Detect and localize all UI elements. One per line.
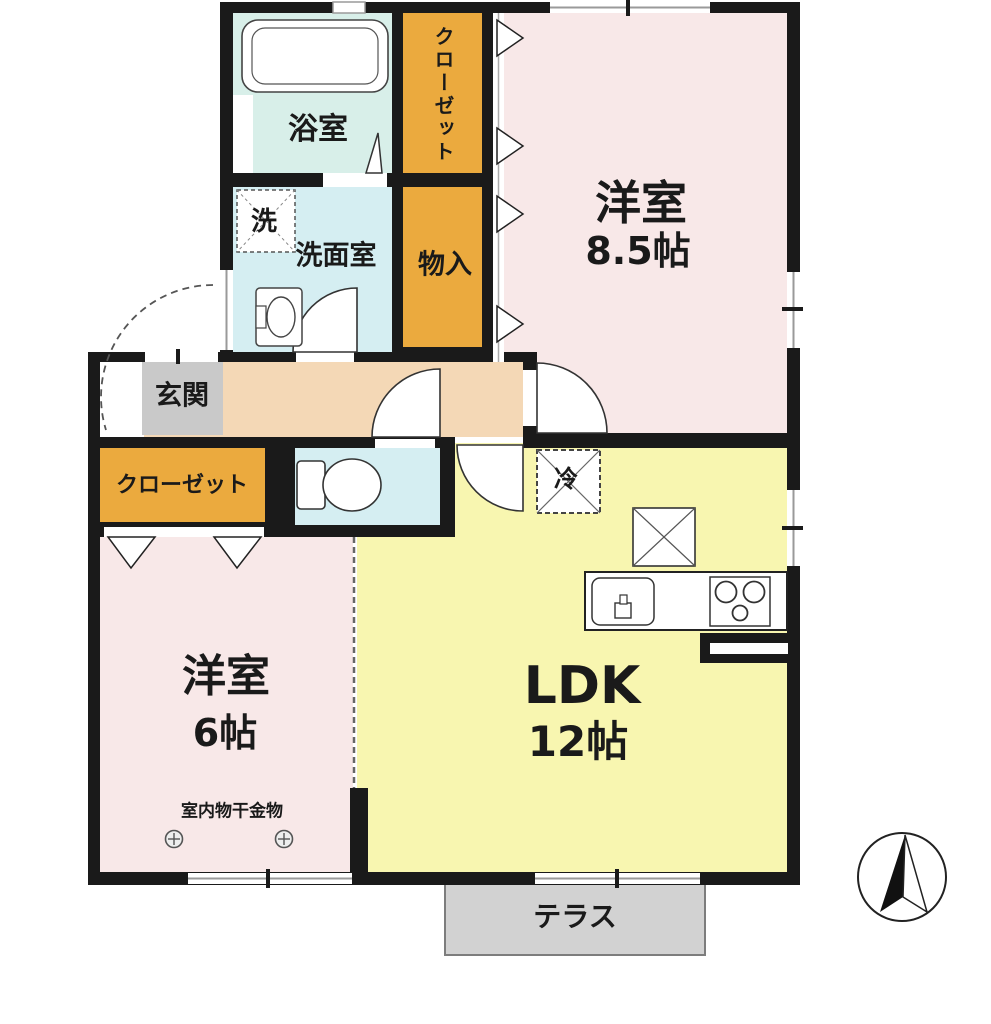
label-terrace: テラス — [533, 903, 616, 931]
label-bedroom1-name: 洋室 — [595, 180, 687, 226]
door-opening — [296, 352, 354, 362]
window-center-tick — [615, 869, 619, 888]
window-center-tick — [782, 526, 803, 530]
toilet-tank — [297, 461, 325, 509]
label-washroom: 洗面室 — [296, 243, 377, 270]
window-center-tick — [626, 0, 630, 16]
stove-burner — [733, 606, 748, 621]
door-opening — [323, 173, 387, 187]
door-opening — [145, 352, 218, 362]
stove-burner — [744, 582, 765, 603]
drying-anchor-icon — [276, 831, 293, 848]
label-bath: 浴室 — [288, 115, 348, 145]
label-washer: 洗 — [251, 209, 277, 235]
label-ldk-name: LDK — [524, 660, 641, 712]
drying-anchor-icon — [166, 831, 183, 848]
door-center-tick — [176, 349, 180, 364]
label-bedroom1-size: 8.5帖 — [585, 232, 690, 270]
washbasin-faucet — [256, 306, 266, 328]
door-opening — [523, 370, 537, 426]
wall — [270, 525, 455, 537]
door-opening — [375, 439, 435, 448]
bathtub-inner — [252, 28, 378, 84]
wall — [392, 347, 493, 362]
label-closet-lower: クローゼット — [116, 475, 248, 497]
wall — [88, 352, 100, 885]
wall — [220, 2, 800, 13]
wall — [265, 437, 295, 537]
wall — [523, 433, 800, 448]
closet-door-track — [104, 527, 264, 537]
floor-plan-drawing — [0, 0, 991, 1024]
washbasin-bowl — [267, 297, 295, 337]
kitchen-faucet — [615, 603, 631, 618]
kitchen-faucet-spout — [620, 595, 627, 604]
floor-plan: 浴室 洗 洗面室 クローゼット 物入 洋室 8.5帖 玄関 クローゼット 洋室 … — [0, 0, 991, 1024]
window-center-tick — [266, 869, 270, 888]
label-entrance: 玄関 — [155, 383, 209, 410]
label-bedroom2-name: 洋室 — [182, 655, 270, 699]
toilet-bowl — [323, 459, 381, 511]
north-compass-icon — [858, 833, 946, 921]
bath-step — [233, 95, 253, 173]
label-refrigerator: 冷 — [554, 467, 578, 491]
label-storage: 物入 — [418, 252, 472, 279]
label-closet-upper: クローゼット — [433, 26, 453, 164]
counter-pass-through — [710, 643, 788, 654]
wall — [440, 437, 455, 537]
room-bedroom2-floor — [100, 537, 353, 873]
label-ldk-size: 12帖 — [528, 721, 628, 763]
window-center-tick — [782, 307, 803, 311]
label-drying-fixture: 室内物干金物 — [181, 804, 283, 821]
entrance-door-swing-area — [100, 362, 144, 437]
window — [333, 2, 365, 13]
wall — [350, 788, 368, 873]
wall — [482, 2, 493, 362]
label-bedroom2-size: 6帖 — [193, 714, 257, 752]
stove-burner — [716, 582, 737, 603]
